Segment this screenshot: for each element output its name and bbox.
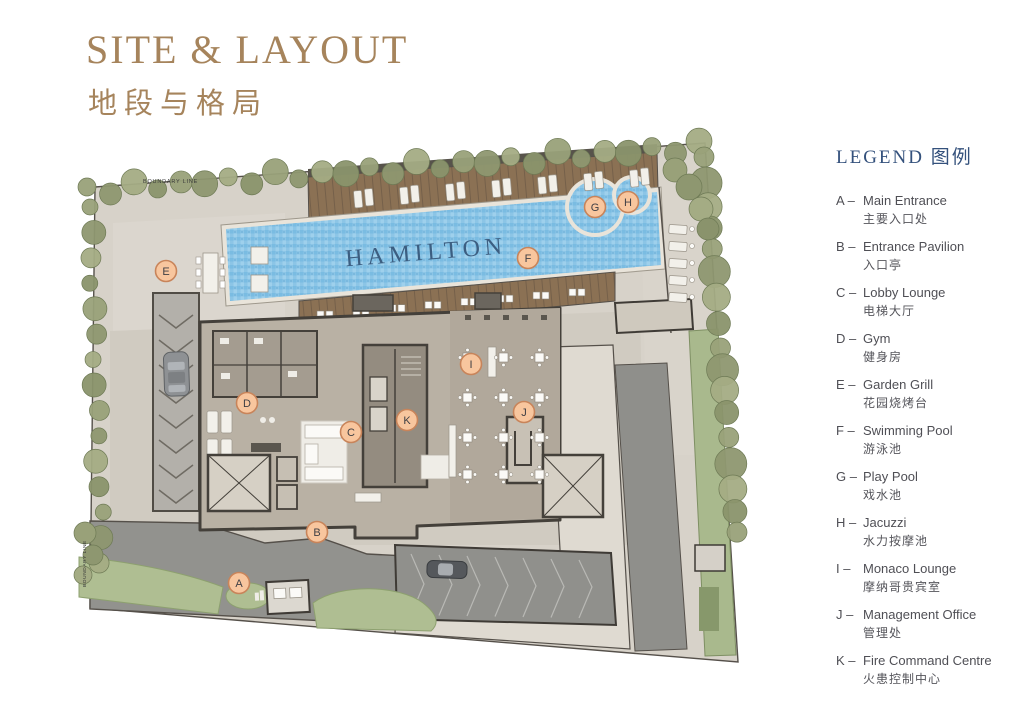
legend-item: D – Gym 健身房	[836, 331, 1020, 365]
page-subtitle: 地段与格局	[88, 80, 268, 122]
legend-item-label-zh: 电梯大厅	[863, 303, 1020, 319]
parked-car	[427, 560, 468, 578]
plan-marker-d: D	[237, 393, 258, 414]
legend-item-label-en: Play Pool	[863, 469, 1020, 485]
legend-item-key: D –	[836, 331, 863, 347]
legend-item-label-zh: 火患控制中心	[863, 671, 1020, 687]
svg-text:E: E	[162, 266, 169, 278]
legend-item: B – Entrance Pavilion 入口亭	[836, 239, 1020, 273]
svg-text:J: J	[521, 407, 527, 419]
legend-item-label-en: Main Entrance	[863, 193, 1020, 209]
svg-text:G: G	[591, 202, 600, 214]
svg-text:A: A	[235, 578, 243, 590]
plan-marker-b: B	[307, 522, 328, 543]
legend-item-key: G –	[836, 469, 863, 485]
brochure-page: SITE & LAYOUT 地段与格局	[0, 0, 1024, 726]
svg-text:K: K	[403, 415, 411, 427]
stair-bulkhead-1	[353, 295, 393, 311]
legend-item-key: F –	[836, 423, 863, 439]
legend-item-label-en: Lobby Lounge	[863, 285, 1020, 301]
svg-text:C: C	[347, 427, 355, 439]
legend-title-zh: 图例	[931, 147, 973, 168]
legend-item-label-zh: 花园烧烤台	[863, 395, 1020, 411]
legend-title: LEGEND 图例	[836, 142, 1020, 169]
car-on-ramp	[163, 352, 190, 397]
svg-text:H: H	[624, 197, 632, 209]
legend-item-label-en: Jacuzzi	[863, 515, 1020, 531]
svg-text:B: B	[313, 527, 320, 539]
plan-marker-i: I	[461, 354, 482, 375]
legend-title-en: LEGEND	[836, 147, 924, 168]
legend-item-label-zh: 主要入口处	[863, 211, 1020, 227]
legend-item-key: K –	[836, 653, 863, 669]
plan-marker-c: C	[341, 422, 362, 443]
shrub-bed	[699, 587, 719, 631]
legend-item: F – Swimming Pool 游泳池	[836, 423, 1020, 457]
legend-item: G – Play Pool 戏水池	[836, 469, 1020, 503]
legend: LEGEND 图例 A – Main Entrance 主要入口处 B – En…	[836, 142, 1020, 699]
boundary-line-label-left: BOUNDARY LINE	[82, 540, 88, 587]
legend-item: A – Main Entrance 主要入口处	[836, 193, 1020, 227]
legend-item-label-en: Fire Command Centre	[863, 653, 1020, 669]
legend-item-label-zh: 健身房	[863, 349, 1020, 365]
svg-text:D: D	[243, 398, 251, 410]
legend-item-label-zh: 入口亭	[863, 257, 1020, 273]
pool-pavilion	[615, 299, 693, 333]
svg-text:I: I	[469, 359, 472, 371]
page-title: SITE & LAYOUT	[86, 26, 408, 73]
legend-item-label-en: Management Office	[863, 607, 1020, 623]
legend-item-label-zh: 水力按摩池	[863, 533, 1020, 549]
legend-item: I – Monaco Lounge 摩纳哥贵宾室	[836, 561, 1020, 595]
legend-item-key: I –	[836, 561, 863, 577]
legend-item: K – Fire Command Centre 火患控制中心	[836, 653, 1020, 687]
legend-item-label-en: Garden Grill	[863, 377, 1020, 393]
utility-structure	[695, 545, 725, 571]
legend-item-key: H –	[836, 515, 863, 531]
stair-bulkhead-2	[475, 293, 501, 309]
plan-marker-f: F	[518, 248, 539, 269]
service-rooms	[213, 331, 317, 397]
site-plan: HAMILTON	[55, 125, 815, 717]
plan-marker-e: E	[156, 261, 177, 282]
legend-item: J – Management Office 管理处	[836, 607, 1020, 641]
legend-item-label-en: Gym	[863, 331, 1020, 347]
legend-item-label-zh: 管理处	[863, 625, 1020, 641]
legend-item-key: B –	[836, 239, 863, 255]
plan-marker-h: H	[618, 192, 639, 213]
plan-marker-a: A	[229, 573, 250, 594]
plan-marker-g: G	[585, 197, 606, 218]
plan-marker-j: J	[514, 402, 535, 423]
legend-item-key: A –	[836, 193, 863, 209]
legend-item-label-en: Entrance Pavilion	[863, 239, 1020, 255]
legend-item-label-en: Monaco Lounge	[863, 561, 1020, 577]
svg-text:F: F	[525, 253, 532, 265]
boundary-line-label-top: BOUNDARY LINE	[143, 179, 198, 185]
legend-item-label-zh: 游泳池	[863, 441, 1020, 457]
legend-item-label-zh: 戏水池	[863, 487, 1020, 503]
legend-item-key: C –	[836, 285, 863, 301]
legend-item-label-zh: 摩纳哥贵宾室	[863, 579, 1020, 595]
legend-item: E – Garden Grill 花园烧烤台	[836, 377, 1020, 411]
plan-marker-k: K	[397, 410, 418, 431]
legend-list: A – Main Entrance 主要入口处 B – Entrance Pav…	[836, 193, 1020, 687]
legend-item-key: E –	[836, 377, 863, 393]
legend-item: H – Jacuzzi 水力按摩池	[836, 515, 1020, 549]
legend-item-label-en: Swimming Pool	[863, 423, 1020, 439]
legend-item: C – Lobby Lounge 电梯大厅	[836, 285, 1020, 319]
legend-item-key: J –	[836, 607, 863, 623]
stair-core-east	[543, 455, 603, 517]
